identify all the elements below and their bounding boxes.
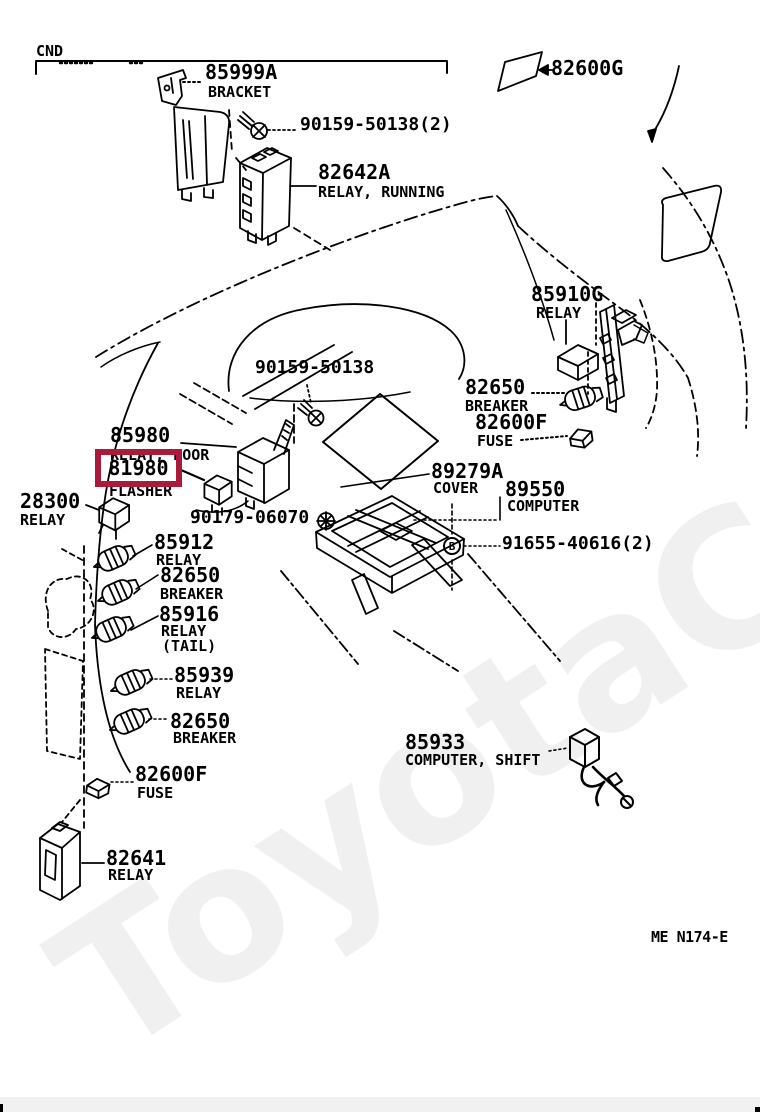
part-number-85910g: 85910G [531, 284, 603, 304]
corner-mark-left [0, 1104, 3, 1112]
computer-shift-icon-85933 [549, 729, 633, 808]
corner-mark-right [755, 1107, 760, 1112]
relay-cube-icon-28300 [86, 498, 129, 539]
highlight-box-81980: 81980 [95, 449, 182, 487]
relay-box-icon-82642a [240, 148, 330, 250]
part-number-82650-right: 82650 [465, 377, 525, 397]
part-number-82600g: 82600G [551, 58, 623, 78]
part-number-81980: 81980 [108, 456, 168, 480]
part-number-91655-40616x2: 91655-40616(2) [502, 535, 654, 553]
sheet-code: ME N174-E [651, 930, 728, 945]
part-number-85916: 85916 [159, 604, 219, 624]
part-desc-85933: COMPUTER, SHIFT [405, 753, 540, 768]
bolt-marker-b: B [443, 537, 461, 555]
fuse-icon-82600f-right [569, 428, 593, 450]
part-desc-85910g: RELAY [536, 306, 581, 321]
part-desc-82642a: RELAY, RUNNING [318, 185, 444, 200]
part-desc-89279a: COVER [433, 481, 478, 496]
part-number-82600f-right: 82600F [475, 412, 547, 432]
relay-box-icon-82641 [40, 822, 104, 900]
parts-diagram-page: ToyotaC [0, 0, 760, 1112]
part-number-85933: 85933 [405, 732, 465, 752]
part-desc2-85916: (TAIL) [162, 639, 216, 654]
part-desc-85939: RELAY [176, 686, 221, 701]
part-desc-82600f-right: FUSE [477, 434, 513, 449]
relay-cube-icon-85910g [558, 320, 598, 380]
part-number-28300: 28300 [20, 491, 80, 511]
part-number-85939: 85939 [174, 665, 234, 685]
part-desc-82641: RELAY [108, 868, 153, 883]
part-number-85999a: 85999A [205, 62, 277, 82]
fuse-block-icon [588, 303, 648, 412]
part-number-85912: 85912 [154, 532, 214, 552]
part-number-89279a: 89279A [431, 461, 503, 481]
cover-icon-89279a [323, 394, 438, 489]
part-desc-85999a: BRACKET [208, 85, 271, 100]
part-desc-28300: RELAY [20, 513, 65, 528]
part-desc-82650-mid: BREAKER [160, 587, 223, 602]
part-number-82650-low: 82650 [170, 711, 230, 731]
screw-icon-90159-mid [294, 385, 324, 443]
part-number-82600f-low: 82600F [135, 764, 207, 784]
part-number-89550: 89550 [505, 479, 565, 499]
vent-icon-82600g [498, 52, 552, 91]
part-number-85980: 85980 [110, 425, 170, 445]
door-relay-icon-85980 [181, 420, 294, 509]
part-desc-82650-low: BREAKER [173, 731, 236, 746]
cnd-label: CND [36, 44, 63, 59]
screw-icon-90159-top [229, 110, 298, 170]
part-number-90179-06070: 90179-06070 [190, 509, 309, 527]
part-number-90159-50138: 90159-50138 [255, 359, 374, 377]
part-number-90159-50138x2: 90159-50138(2) [300, 116, 452, 134]
footer-strip [0, 1097, 760, 1112]
part-desc-82600f-low: FUSE [137, 786, 173, 801]
relay-icon-85939 [107, 664, 154, 700]
part-desc-89550: COMPUTER [507, 499, 579, 514]
breaker-icon-82650-mid [94, 574, 141, 610]
part-number-82641: 82641 [106, 848, 166, 868]
computer-icon-89550 [316, 496, 500, 614]
part-number-82650-mid: 82650 [160, 565, 220, 585]
part-number-82642a: 82642A [318, 162, 390, 182]
breaker-icon-82650-right [557, 382, 604, 414]
fuse-icon-82600f-low [86, 778, 110, 800]
